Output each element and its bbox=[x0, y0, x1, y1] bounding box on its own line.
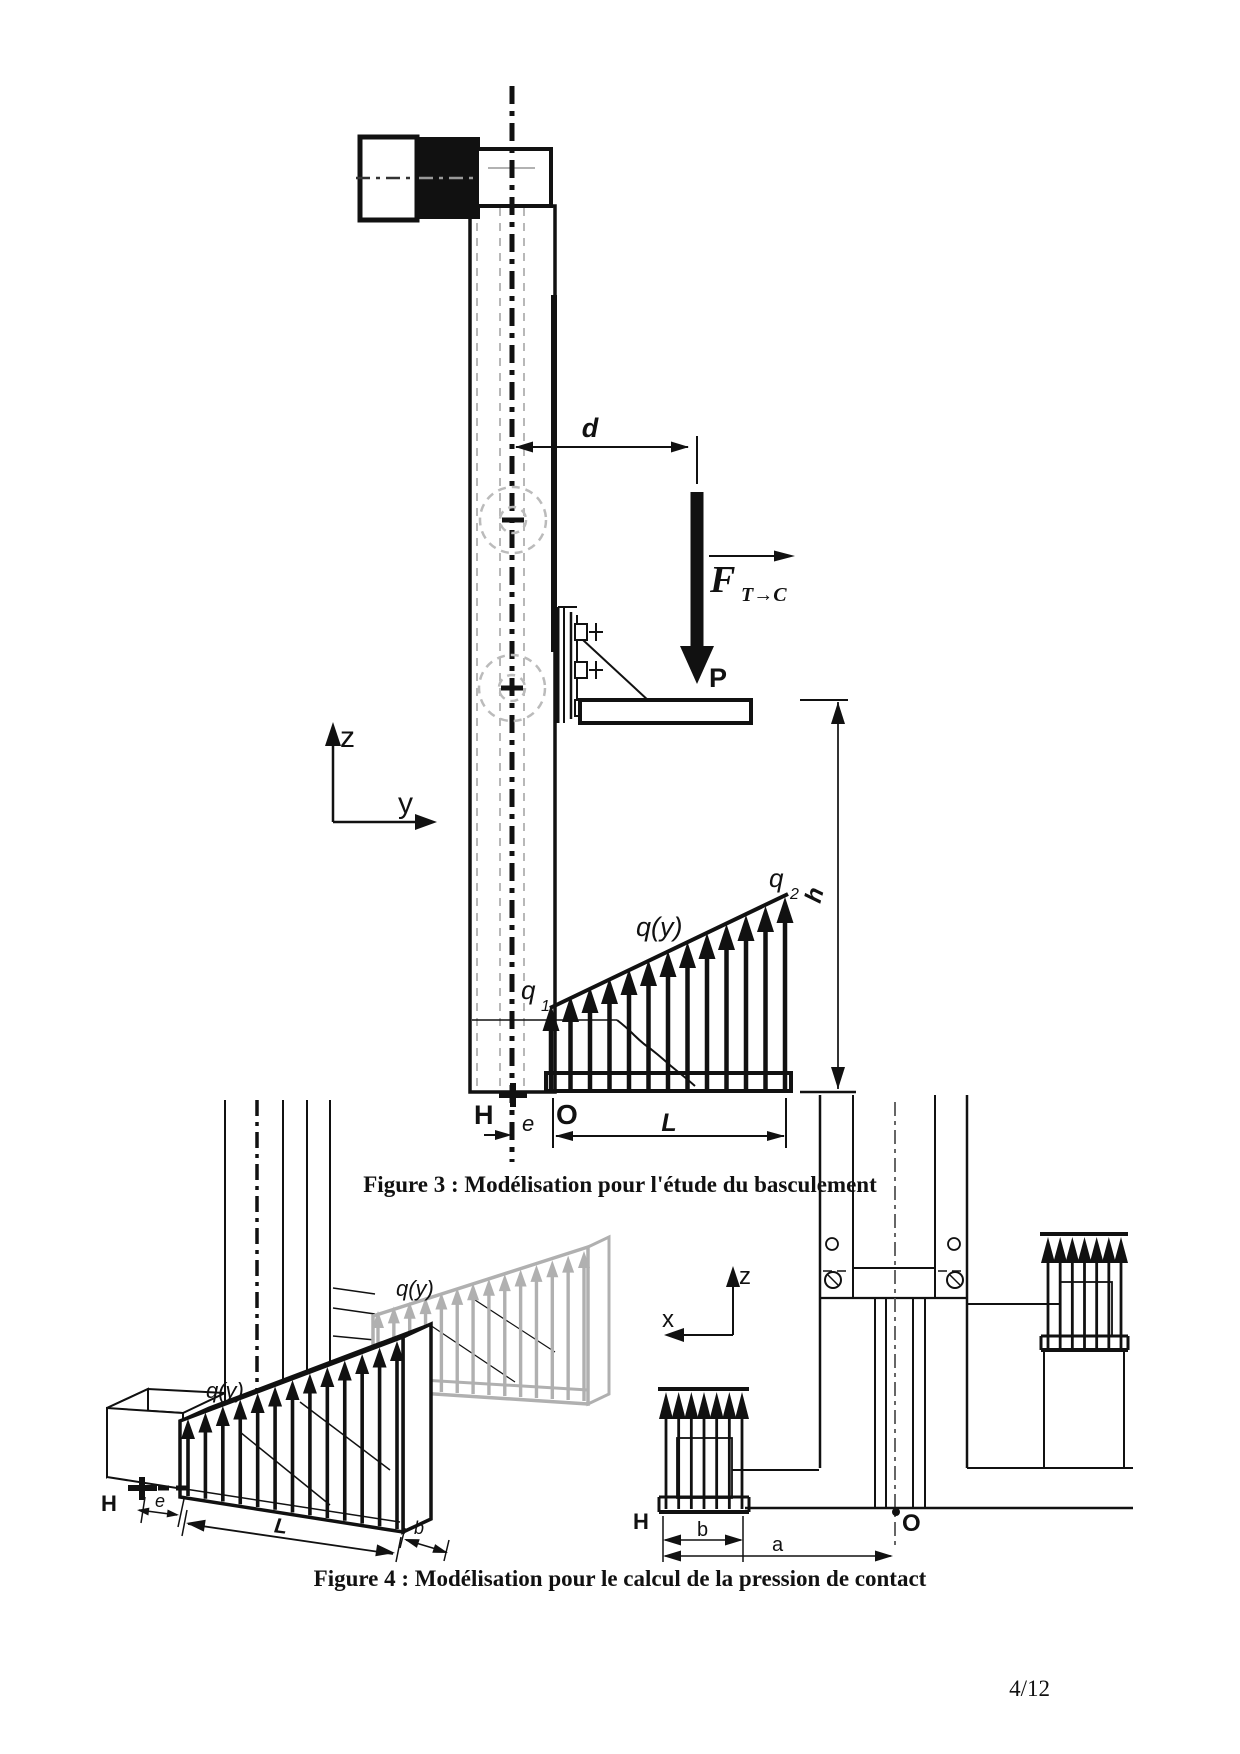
point-h-label-3d: H bbox=[101, 1491, 117, 1516]
mast-front-view bbox=[820, 1095, 967, 1508]
load-function-label: q(y) bbox=[636, 912, 683, 942]
load-function-front-label: q(y) bbox=[206, 1378, 244, 1403]
origin-o-label-fig4: O bbox=[902, 1510, 921, 1537]
mast-3d-lines bbox=[225, 1100, 330, 1413]
dimension-b-3d bbox=[400, 1528, 449, 1561]
dimension-a-label-fig4: a bbox=[772, 1534, 784, 1556]
figure3-drawing: d F T→C P bbox=[325, 86, 856, 1162]
axis-z-label: z bbox=[340, 721, 355, 754]
support-edges bbox=[333, 1288, 375, 1340]
figure3-caption: Figure 3 : Modélisation pour l'étude du … bbox=[0, 1172, 1240, 1198]
point-h-label: H bbox=[474, 1100, 494, 1130]
document-page: d F T→C P bbox=[0, 0, 1240, 1754]
dimension-l-label-3d: L bbox=[273, 1514, 289, 1538]
load-function-back-label: q(y) bbox=[396, 1276, 434, 1301]
dimension-e bbox=[484, 1130, 512, 1140]
figure4-right-drawing: z x bbox=[633, 1095, 1133, 1562]
right-contact-arrows bbox=[1041, 1237, 1128, 1348]
q1-label: q bbox=[521, 975, 536, 1005]
dimension-e-label: e bbox=[522, 1111, 534, 1136]
dimension-h-label: h bbox=[800, 884, 830, 905]
force-symbol: F bbox=[709, 559, 735, 601]
left-contact-arrows bbox=[659, 1392, 749, 1509]
axes-xz bbox=[664, 1266, 740, 1342]
q2-subscript: 2 bbox=[789, 886, 799, 903]
point-p-label: P bbox=[709, 663, 727, 693]
page-number: 4/12 bbox=[930, 1676, 1050, 1702]
q1-subscript: 1 bbox=[541, 998, 550, 1015]
axis-z-label-fig4: z bbox=[739, 1263, 751, 1290]
figures-drawing: d F T→C P bbox=[0, 0, 1240, 1754]
force-arrow bbox=[680, 492, 714, 684]
bolt-circles bbox=[825, 1238, 963, 1288]
origin-o-dot bbox=[892, 1508, 900, 1516]
axis-x-label-fig4: x bbox=[662, 1306, 674, 1333]
dimension-d-label: d bbox=[582, 413, 599, 443]
figure4-left-drawing: q(y) q(y) H e L bbox=[101, 1100, 609, 1562]
dimension-e-label-3d: e bbox=[155, 1491, 165, 1511]
q2-label: q bbox=[769, 863, 784, 893]
platform bbox=[580, 700, 751, 723]
black-load-side-face bbox=[403, 1324, 431, 1532]
dimension-l-label: L bbox=[661, 1109, 676, 1137]
origin-o-label: O bbox=[556, 1099, 578, 1130]
force-subscript: T→C bbox=[741, 584, 787, 606]
dimension-b-label-3d: b bbox=[414, 1518, 424, 1538]
dimension-b-label-fig4: b bbox=[697, 1519, 708, 1541]
force-vector-label: F T→C bbox=[709, 551, 795, 607]
axis-y-label: y bbox=[398, 787, 413, 820]
point-h-label-fig4: H bbox=[633, 1509, 649, 1534]
figure4-caption: Figure 4 : Modélisation pour le calcul d… bbox=[0, 1566, 1240, 1592]
